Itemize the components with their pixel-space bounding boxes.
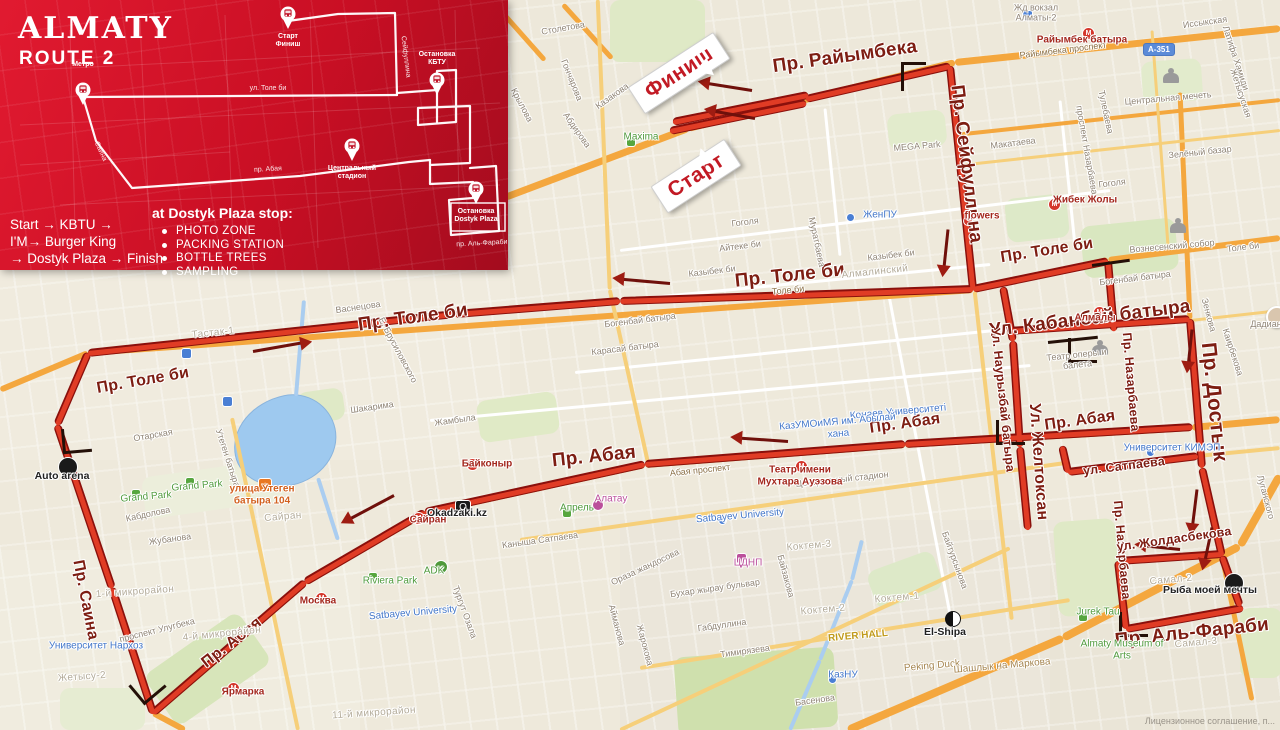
map-label: Maxima <box>623 132 658 143</box>
map-label: Шашлык на Маркова <box>953 656 1051 675</box>
map-label: Богенбай батыра <box>1099 269 1171 288</box>
sketch-street-label: пр. Аль-Фараби <box>456 238 508 249</box>
route-overview-inset-panel: СтартФинишОстановкаКБТУМетроЦентральныйс… <box>0 0 508 270</box>
bus-stop-marker-icon <box>345 139 360 162</box>
map-label: Университет КИМЭП <box>1124 443 1221 454</box>
map-label: Алмалинский <box>841 263 909 281</box>
map-label: Гончарова <box>559 58 585 102</box>
sketch-marker-label: стадион <box>338 173 366 180</box>
map-label: КазУМОиМЯ им. Абылай хана <box>777 411 899 444</box>
map-label: проспект Назарбаева <box>1074 105 1099 195</box>
sketch-marker-label: Остановка <box>419 51 456 58</box>
route-street-label: ул. Сатпаева <box>1082 454 1165 478</box>
stop-item: SAMPLING <box>152 266 293 280</box>
map-label: Каирбекова <box>1221 327 1246 377</box>
map-label: Шакарима <box>350 399 395 415</box>
map-label: Дадиан <box>1250 319 1280 329</box>
map-label: 11-й микрорайон <box>332 705 416 722</box>
map-label: Жамбыла <box>434 412 476 428</box>
map-label: Кабдолова <box>125 504 171 523</box>
map-label: Вознесенский собор <box>1129 237 1215 254</box>
map-label: Айманова <box>607 603 628 646</box>
dostyk-plaza-stops: at Dostyk Plaza stop: PHOTO ZONEPACKING … <box>152 205 293 279</box>
map-label: Центральная мечеть <box>1124 89 1212 107</box>
map-label: Jurek Tau <box>1076 607 1119 618</box>
sketch-grid-line <box>60 185 500 205</box>
sketch-grid-line <box>140 20 150 240</box>
bus-stop-marker-icon <box>430 73 445 96</box>
route-description: Start → KBTU →I'M→ Burger King→ Dostyk P… <box>10 216 163 267</box>
route-street-label: Пр. Назарбаева <box>1120 332 1143 432</box>
map-label: Okadzaki.kz <box>427 507 487 519</box>
sketch-marker-label: Остановка <box>458 208 495 215</box>
map-label: Жарокова <box>635 623 656 666</box>
sketch-marker-label: Dostyk Plaza <box>454 216 497 223</box>
map-label: Столетова <box>540 19 585 36</box>
map-label: flowers <box>964 211 999 222</box>
map-label: Рыба моей мечты <box>1163 584 1257 596</box>
map-label: Бухар жырау бульвар <box>670 577 761 599</box>
map-label: ADK <box>424 566 445 577</box>
bus-stop-marker-icon <box>281 7 296 30</box>
route-street-label: Пр. Абая <box>1043 407 1116 435</box>
map-label: Зелёный базар <box>1168 144 1232 161</box>
sketch-street-label: ул. Толе би <box>250 84 287 92</box>
map-label: Гоголя <box>731 215 759 228</box>
map-label: Peking Duck <box>904 658 961 674</box>
map-label: Ораза жандосова <box>609 547 680 587</box>
bullet-icon <box>162 270 167 275</box>
bullet-icon <box>162 256 167 261</box>
map-label: RIVER HALL <box>828 628 889 644</box>
map-label: Auto arena <box>35 470 90 482</box>
route-street-label: Пр. Толе би <box>95 364 190 398</box>
map-label: Толе би <box>771 283 804 296</box>
map-label: Ярмарка <box>222 687 265 698</box>
route-street-label: Пр. Толе би <box>999 235 1094 267</box>
stop-item: PHOTO ZONE <box>152 225 293 239</box>
map-label: Толе би <box>1226 240 1260 254</box>
bullet-icon <box>162 243 167 248</box>
sketch-route-line <box>288 13 397 95</box>
map-label: Казакова <box>594 81 631 111</box>
map-label: Almaty Museum of Arts <box>1075 639 1170 662</box>
map-label: Отарская <box>133 427 174 444</box>
map-label: Самал-3 <box>1174 636 1218 651</box>
map-label: El-Shipa <box>924 626 966 638</box>
sketch-street-label: пр. Абая <box>254 164 282 173</box>
map-label: Москва <box>300 596 336 607</box>
route-description-line: Start → KBTU → <box>10 216 163 233</box>
map-label: Каныша Сатпаева <box>501 530 578 551</box>
map-label: Коктем-1 <box>874 591 920 606</box>
map-label: Апрель <box>560 503 594 514</box>
map-label: улица Утеген батыра 104 <box>216 484 308 507</box>
map-label: Казыбек би <box>688 263 736 279</box>
bullet-icon <box>162 229 167 234</box>
map-label: Университет Нархоз <box>49 641 143 652</box>
map-label: Satbayev University <box>696 507 785 526</box>
map-label: КазНУ <box>828 670 857 681</box>
route-description-line: → Dostyk Plaza → Finish <box>10 250 163 267</box>
map-label: Жибек Жолы <box>1053 195 1117 206</box>
map-label: Театр оперы и балета <box>1036 346 1118 375</box>
sketch-grid-line <box>20 103 500 125</box>
route-street-label: Пр. Абая <box>198 614 265 672</box>
map-label: Абдирова <box>561 110 593 149</box>
map-label: Жубанова <box>148 531 191 547</box>
map-label: Карасай батыра <box>591 339 659 357</box>
map-label: Райымбек батыра <box>1037 35 1127 46</box>
stop-item-label: BOTTLE TREES <box>176 252 267 266</box>
sketch-marker-label: Центральный <box>328 164 376 172</box>
map-label: Riviera Park <box>363 576 417 587</box>
map-label: 1-й микрорайон <box>95 584 174 600</box>
map-label: Grand Park <box>120 489 172 504</box>
bus-stop-marker-icon <box>76 83 91 106</box>
map-label: Зенкова <box>1200 297 1218 333</box>
map-label: Луганского <box>1255 474 1276 520</box>
map-label: Габдуллина <box>697 617 747 634</box>
map-label: Satbayev University <box>369 604 458 623</box>
sketch-marker-label: КБТУ <box>428 59 446 66</box>
map-label: MEGA Park <box>893 139 941 153</box>
map-label: Тастак-1 <box>191 325 235 340</box>
stops-title: at Dostyk Plaza stop: <box>152 205 293 221</box>
sketch-grid-line <box>20 152 230 165</box>
stop-item-label: PACKING STATION <box>176 239 284 253</box>
map-label: Айтеке би <box>719 238 762 253</box>
stop-item-label: PHOTO ZONE <box>176 225 256 239</box>
inset-title: ALMATY <box>18 14 173 44</box>
map-label: Алатау <box>595 494 628 505</box>
stops-list: PHOTO ZONEPACKING STATIONBOTTLE TREESSAM… <box>152 225 293 279</box>
map-label: Сайран <box>264 510 302 524</box>
map-label: Казыбек би <box>867 247 915 263</box>
map-label: Муратбаева <box>807 216 827 268</box>
map-label: Театр имени Мухтара Ауэзова <box>748 465 853 488</box>
sketch-marker-label: Финиш <box>276 41 301 48</box>
map-label: Коктем-3 <box>786 539 832 554</box>
sketch-street-label: Сейфуллина <box>399 36 412 78</box>
stop-item: BOTTLE TREES <box>152 252 293 266</box>
route-street-label: Пр. Абая <box>551 442 637 473</box>
stop-item: PACKING STATION <box>152 239 293 253</box>
sketch-route-line <box>430 160 499 235</box>
map-label: Басенова <box>794 692 835 707</box>
map-label: Алмалы <box>1074 313 1115 324</box>
bus-stop-marker-icon <box>469 182 484 205</box>
map-label: Байтурсынова <box>940 530 970 590</box>
map-label: Макатаева <box>990 135 1036 150</box>
map-label: Тулебаева <box>1097 89 1116 134</box>
map-label: ЖенПУ <box>863 210 897 221</box>
sketch-street-label: Саина <box>93 141 108 163</box>
map-label: ЦДНП <box>734 558 763 569</box>
map-label: Жетысу-2 <box>58 670 107 684</box>
inset-subtitle: ROUTE 2 <box>19 48 115 70</box>
map-label: Байзакова <box>776 554 797 599</box>
map-label: Жд вокзал Алматы-2 <box>1000 3 1072 24</box>
stop-item-label: SAMPLING <box>176 266 239 280</box>
map-label: Байконыр <box>462 459 513 470</box>
route-street-label: ул. Жолдасбекова <box>1116 524 1233 554</box>
sketch-grid-line <box>310 12 318 248</box>
map-label: Богенбай батыра <box>604 311 676 330</box>
map-label: Тимирязева <box>720 643 771 660</box>
route-description-line: I'M→ Burger King <box>10 233 163 250</box>
license-attribution-link[interactable]: Лицензионное соглашение, п... <box>1100 716 1275 726</box>
route-street-label: Пр. Райымбека <box>771 36 918 78</box>
route-street-label: Ул. Наурызбай батыра <box>988 327 1017 472</box>
route-map-canvas[interactable]: ММММММММ⌂OА-351 Пр. РайымбекаПр. Сейфулл… <box>0 0 1280 730</box>
map-label: Коктем-2 <box>800 603 846 618</box>
map-label: Крылова <box>509 86 535 123</box>
sketch-marker-label: Старт <box>278 33 299 40</box>
map-label: Гоголя <box>1098 176 1126 189</box>
map-label: Абая проспект <box>669 462 730 478</box>
